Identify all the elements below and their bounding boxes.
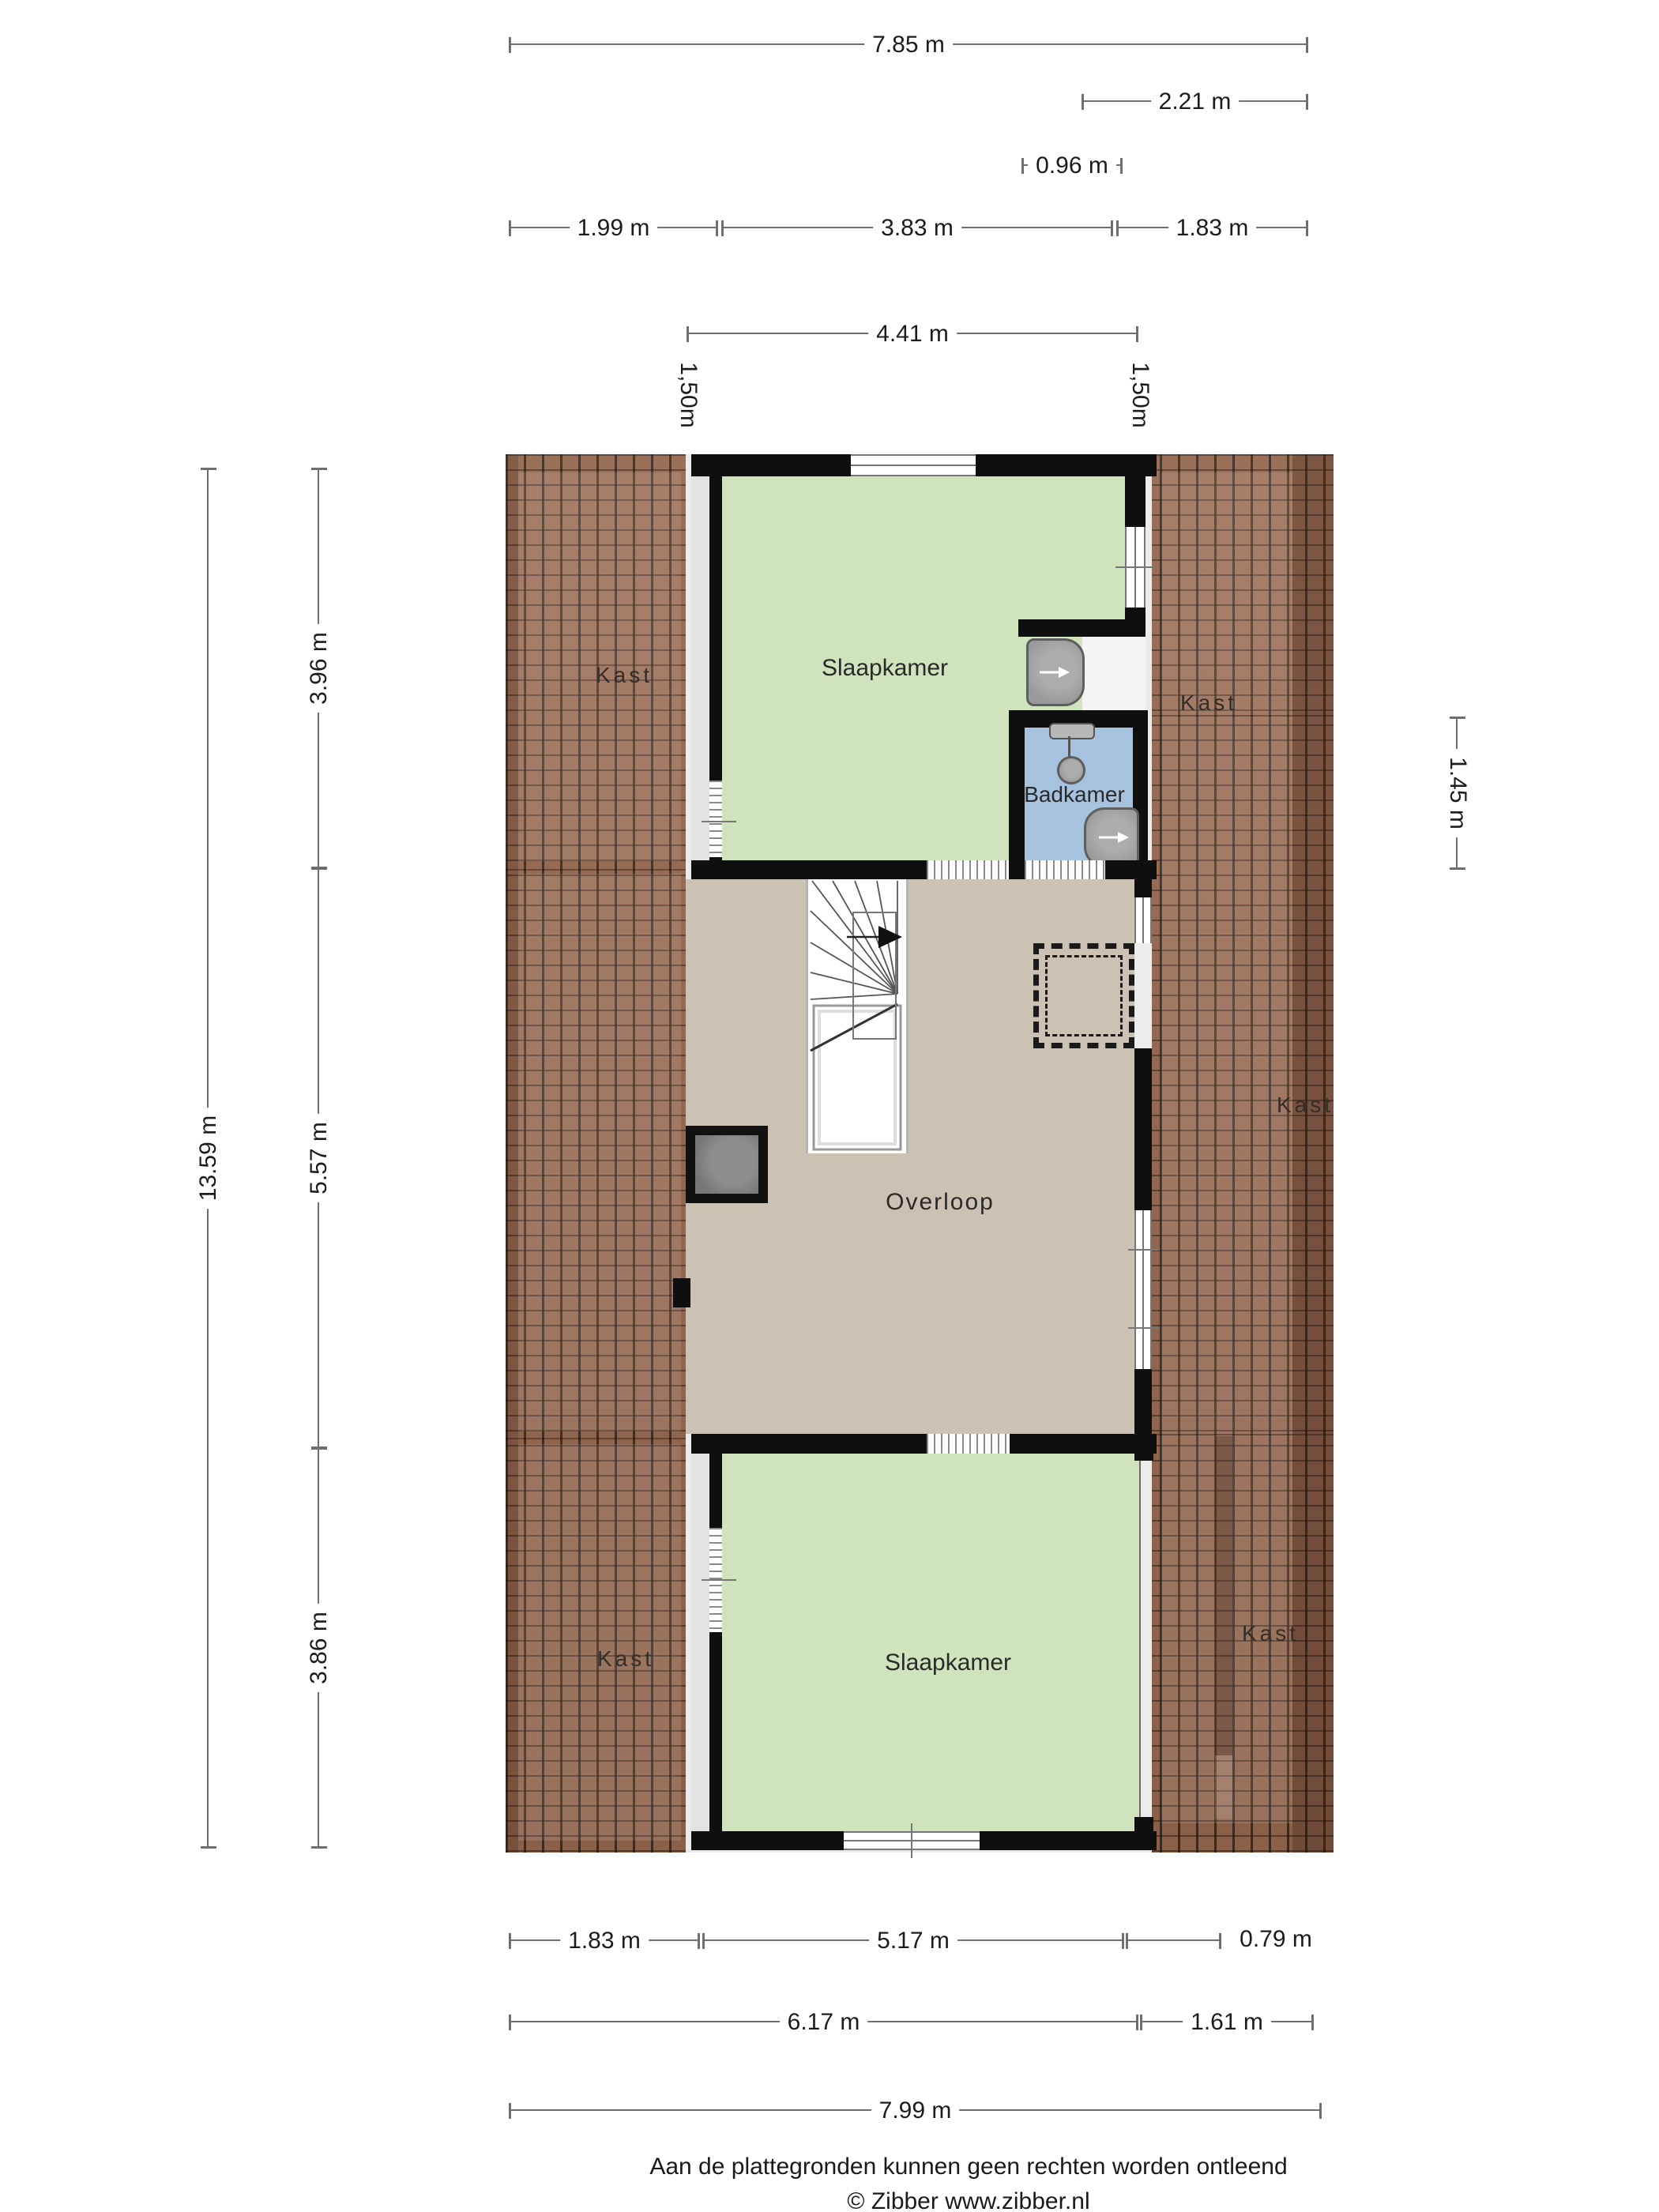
dim-label: 1.83 m bbox=[560, 1928, 649, 1954]
chimney bbox=[686, 1126, 768, 1203]
window-bar bbox=[1142, 1210, 1144, 1369]
roof-panel-bottom-left bbox=[518, 1444, 681, 1841]
roof-ridge-light-bottom-right bbox=[1215, 1755, 1232, 1819]
closet-label-bottom-left: Kast bbox=[597, 1646, 654, 1672]
door-bathroom bbox=[1025, 860, 1105, 879]
chimney-flue bbox=[695, 1135, 758, 1194]
dim-bottom-079-line bbox=[1127, 1939, 1221, 1941]
wall-bedroom-bottom-right-stub-top bbox=[1134, 1434, 1153, 1461]
closet-label-bottom-right: Kast bbox=[1242, 1621, 1299, 1646]
stairwell bbox=[806, 879, 908, 1153]
dim-bottom-183: 1.83 m bbox=[510, 1939, 699, 1941]
dim-bottom-799: 7.99 m bbox=[510, 2109, 1321, 2111]
roof-hatch-dashed-outline bbox=[1033, 943, 1134, 1048]
window-tick-bottom-left bbox=[702, 1579, 736, 1581]
dim-bottom-617: 6.17 m bbox=[510, 2021, 1138, 2022]
roof-seam-right-1 bbox=[1152, 715, 1334, 717]
eaves-strip-top-left bbox=[690, 476, 709, 860]
window-tick-right bbox=[1115, 566, 1155, 568]
room-label-bedroom-top: Slaapkamer bbox=[822, 655, 948, 682]
roof-ridge-bottom-right bbox=[1215, 1436, 1232, 1755]
closet-label-top-left: Kast bbox=[596, 663, 653, 688]
footer-credit: © Zibber www.zibber.nl bbox=[847, 2188, 1089, 2212]
wall-bedroom-top-right-upper bbox=[1125, 454, 1145, 527]
window-bar bbox=[851, 465, 976, 466]
window-landing-bottom bbox=[927, 1434, 1010, 1454]
dim-label: 6.17 m bbox=[780, 2009, 868, 2036]
wall-bathroom-left bbox=[1009, 710, 1025, 879]
window-tick-left bbox=[702, 821, 736, 822]
shower-hose-icon bbox=[1068, 736, 1070, 758]
eaves-strip-bottom-left bbox=[690, 1454, 709, 1831]
room-label-bathroom: Badkamer bbox=[1024, 782, 1125, 807]
dim-bottom-517: 5.17 m bbox=[703, 1939, 1123, 1941]
wall-nook-top bbox=[1018, 619, 1145, 637]
shower-head-icon bbox=[1057, 756, 1085, 784]
room-label-bedroom-bottom: Slaapkamer bbox=[885, 1650, 1011, 1676]
window-top bbox=[851, 454, 976, 476]
roof-seam-left-2 bbox=[506, 1438, 686, 1439]
window-landing-right-1 bbox=[1134, 897, 1152, 943]
roof-panel-mid-left bbox=[518, 874, 681, 1431]
roof-hatch-inner-outline bbox=[1045, 955, 1123, 1036]
window-tick-landing-2 bbox=[1128, 1327, 1160, 1329]
window-bar bbox=[1142, 897, 1144, 943]
wall-landing-right-2 bbox=[1134, 1048, 1152, 1210]
dim-label-079: 0.79 m bbox=[1235, 1926, 1317, 1953]
wall-bottomsection-top bbox=[691, 1434, 1157, 1454]
sink-drain-arrow-icon bbox=[1099, 830, 1130, 845]
dim-bottom-161: 1.61 m bbox=[1141, 2021, 1313, 2022]
footer-disclaimer: Aan de plattegronden kunnen geen rechten… bbox=[649, 2154, 1287, 2180]
door-bedroom-top bbox=[927, 860, 1009, 879]
stairs-icon bbox=[806, 879, 908, 1153]
dim-label: 5.17 m bbox=[869, 1928, 957, 1954]
toilet-flush-arrow-icon bbox=[1040, 665, 1071, 679]
closet-label-top-right: Kast bbox=[1180, 690, 1237, 716]
bedroom-bottom-floor bbox=[722, 1454, 1139, 1831]
window-tick-bottom bbox=[911, 1823, 912, 1858]
floorplan-drawing: Slaapkamer Badkamer Overloop Slaapkamer … bbox=[0, 0, 1659, 2212]
roof-seam-left-1 bbox=[506, 869, 686, 871]
dim-label: 1.61 m bbox=[1183, 2009, 1271, 2036]
nook-floor bbox=[1082, 637, 1145, 710]
floorplan-page: 7.85 m 2.21 m 0.96 m 1.99 m 3.83 m 1.83 … bbox=[0, 0, 1659, 2212]
bedroom-bottom-right-line bbox=[1139, 1460, 1141, 1825]
dim-label: 7.99 m bbox=[871, 2097, 960, 2124]
wall-landing-right-3 bbox=[1134, 1369, 1152, 1434]
wall-bedroom-bottom-left bbox=[709, 1454, 722, 1831]
closet-label-mid-right: Kast bbox=[1277, 1093, 1334, 1118]
roof-shade-left bbox=[506, 454, 518, 1853]
window-landing-right-2 bbox=[1134, 1210, 1152, 1369]
sink-icon bbox=[1084, 807, 1139, 867]
wall-landing-left-stub bbox=[673, 1278, 690, 1307]
wall-landing-right-1 bbox=[1134, 879, 1152, 897]
room-label-landing: Overloop bbox=[886, 1189, 995, 1216]
toilet-icon bbox=[1026, 638, 1085, 706]
shower-faucet-icon bbox=[1049, 723, 1095, 739]
roof-seam-right-2 bbox=[1152, 1434, 1334, 1435]
window-bedroom-top-left bbox=[709, 781, 722, 857]
window-tick-landing-1 bbox=[1128, 1249, 1160, 1251]
